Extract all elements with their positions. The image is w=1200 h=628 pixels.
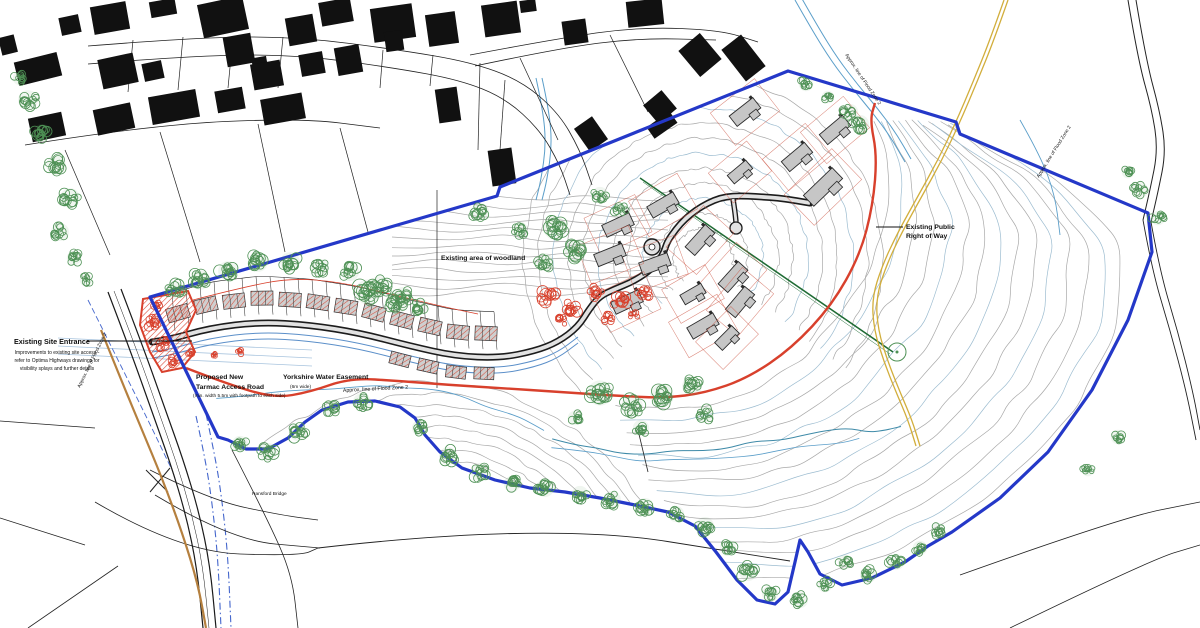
label-access-road-1: Proposed New [196,374,244,381]
label-site-entrance: Existing Site Entrance [14,337,90,346]
label-water-easement: Yorkshire Water Easement [283,374,369,381]
label-prow-2: Right of Way [906,233,947,240]
label-woodland: Existing area of woodland [441,255,525,262]
label-access-road-2: Tarmac Access Road [196,384,264,391]
label-site-entrance-note-2: refer to Optima Highways drawings for [14,358,99,364]
label-site-entrance-note-1: Improvements to existing site access - [15,350,100,356]
label-prow-1: Existing Public [906,224,955,231]
label-bridge: Hansford Bridge [252,491,287,497]
site-plan-map: Existing Site Entrance Improvements to e… [0,0,1200,628]
label-site-entrance-note-3: visibility splays and further details [20,366,95,372]
site-plan: Existing Site Entrance Improvements to e… [0,0,1200,628]
label-water-easement-sub: (6m wide) [290,384,311,390]
label-access-road-sub: (min. width 5.5m with footpath to each s… [193,393,286,399]
